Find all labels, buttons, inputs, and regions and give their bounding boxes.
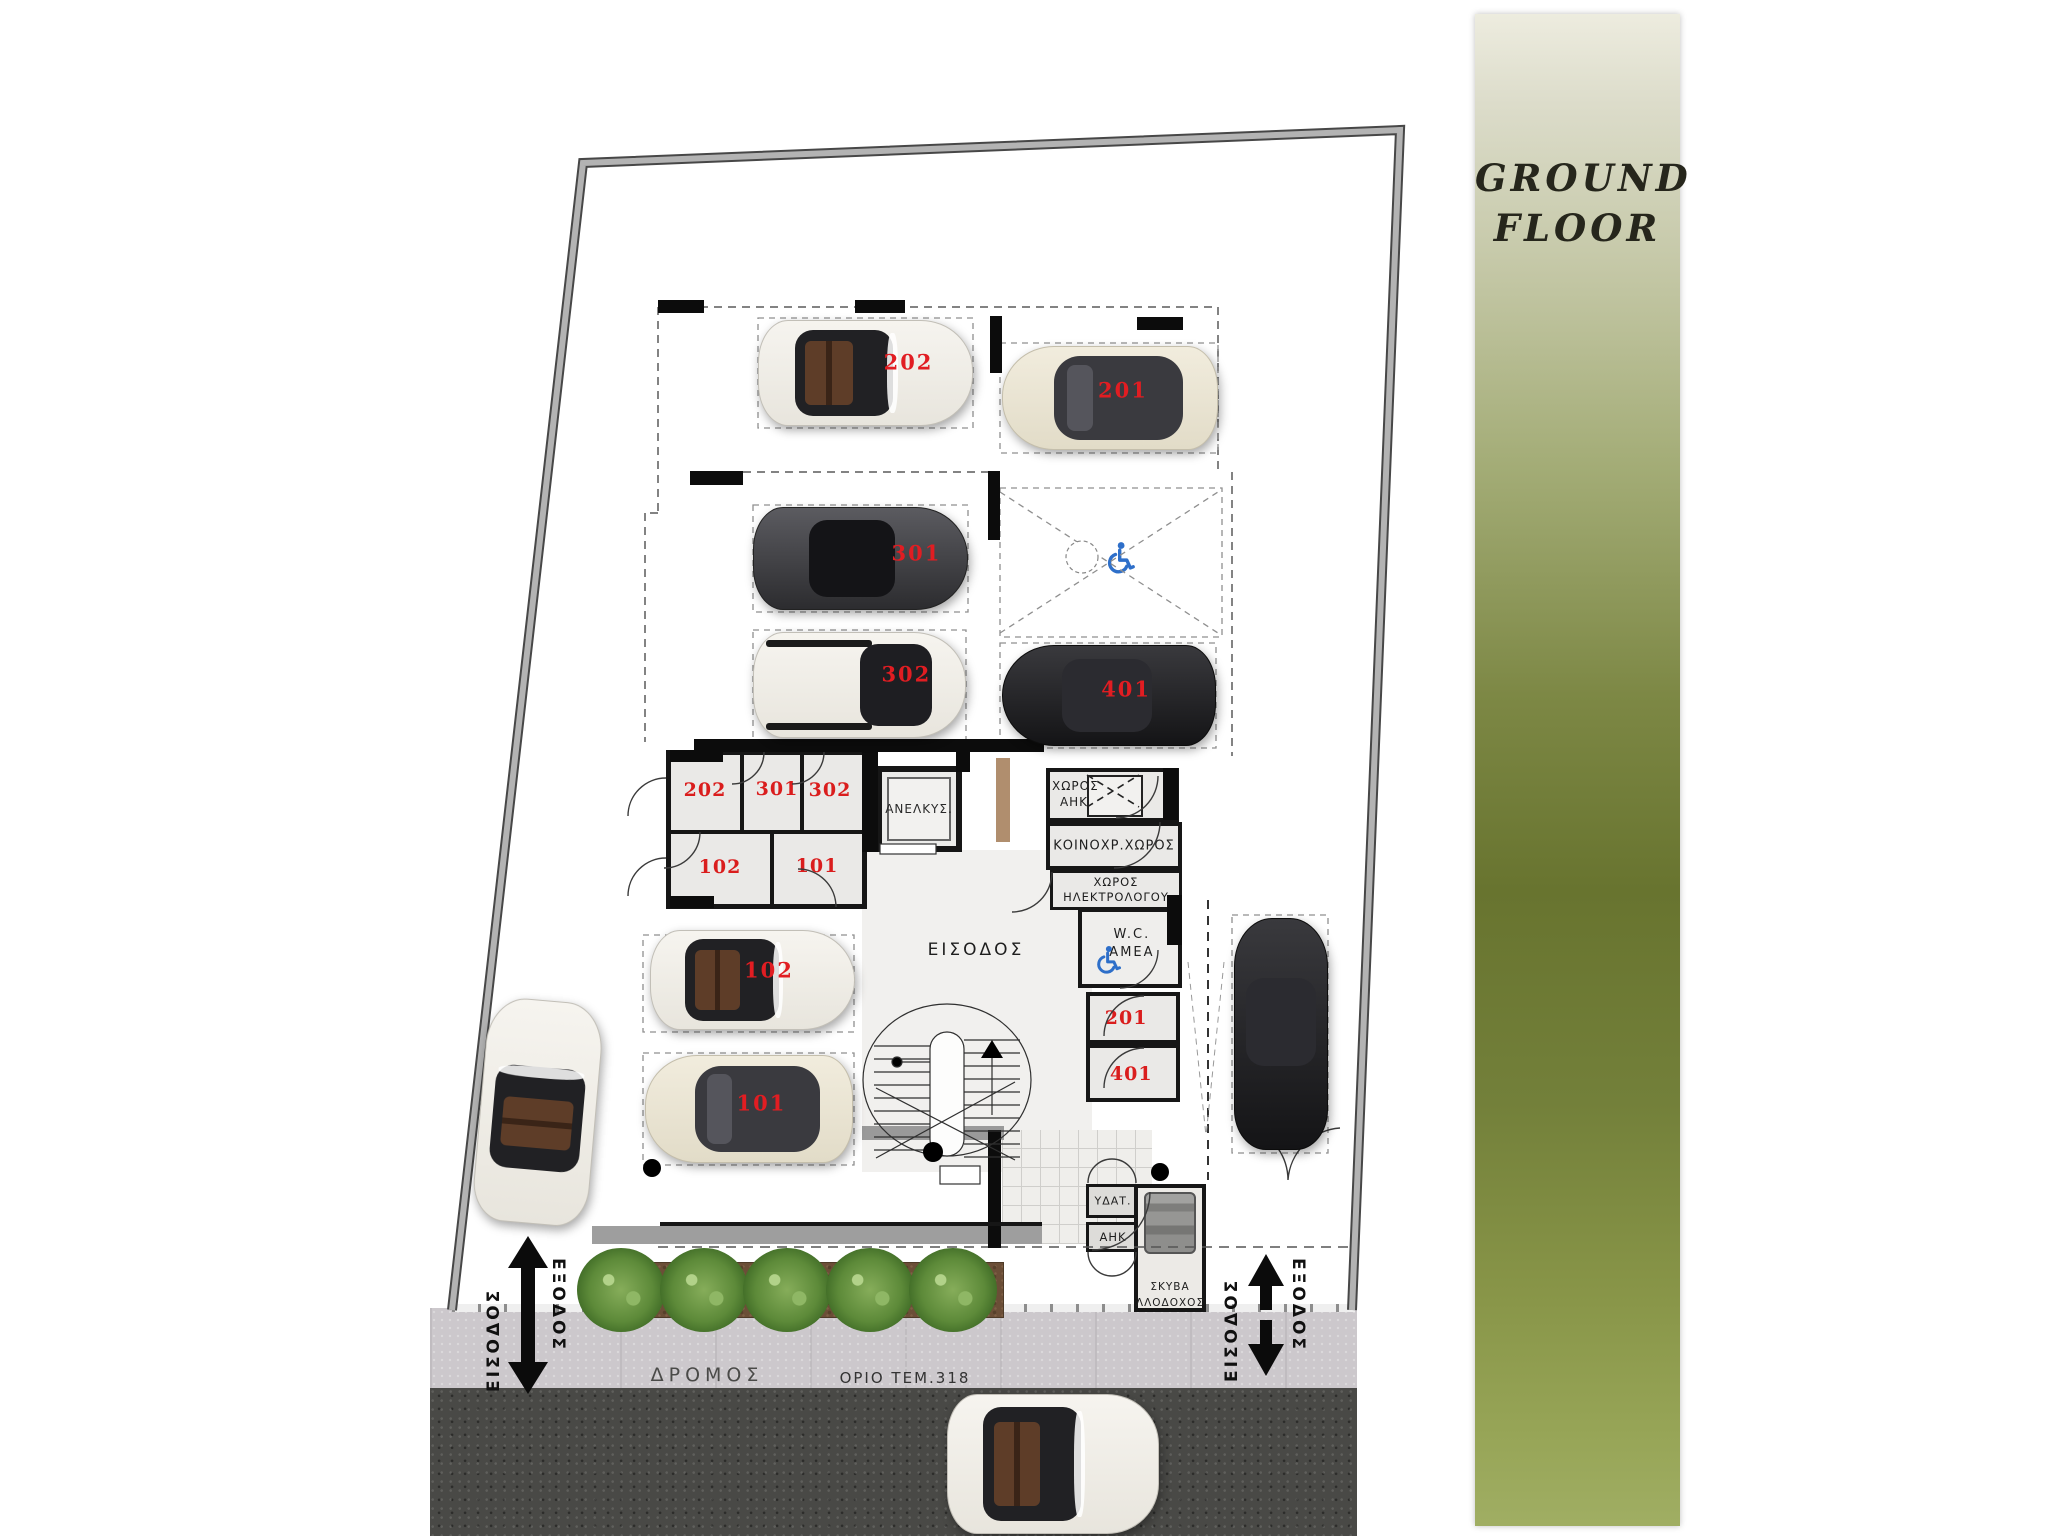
porch-wall bbox=[862, 1126, 1004, 1140]
tree bbox=[577, 1248, 665, 1332]
storage-302-label: 302 bbox=[809, 779, 852, 801]
parked-car-301: 301 bbox=[753, 507, 968, 610]
communal-room: ΚΟΙΝΟΧΡ.ΧΩΡΟΣ bbox=[1046, 822, 1182, 870]
water-room-label: ΥΔΑΤ. bbox=[1095, 1195, 1132, 1208]
road-asphalt bbox=[430, 1388, 1357, 1536]
tree bbox=[743, 1248, 831, 1332]
garbage-room-label: ΣΚΥΒΑΛΛΟΔΟΧΟΣ bbox=[1136, 1280, 1204, 1312]
entrance-hall-label: ΕΙΣΟΔΟΣ bbox=[928, 940, 1025, 960]
left-gate-entry-label: ΕΙΣΟΔΟΣ bbox=[484, 1256, 504, 1392]
parked-car-102: 102 bbox=[650, 930, 855, 1030]
parked-car-302: 302 bbox=[753, 632, 966, 738]
tree bbox=[660, 1248, 748, 1332]
right-gate-exit-label: ΕΞΟΔΟΣ bbox=[1288, 1258, 1308, 1382]
ahk-meter-label: ΑΗΚ bbox=[1099, 1230, 1126, 1244]
ahk-room-label: ΧΩΡΟΣΑΗΚ bbox=[1052, 779, 1096, 810]
store-201: 201 bbox=[1086, 992, 1180, 1044]
accessible-space-label: P8 bbox=[1070, 547, 1093, 567]
floor-plan-canvas: ΔΡΟΜΟΣ ΟΡΙΟ ΤΕΜ.318 202 301 302 102 101 … bbox=[0, 0, 2048, 1536]
parked-car-201: 201 bbox=[1002, 346, 1218, 450]
tree bbox=[826, 1248, 914, 1332]
title-strip: GROUND FLOOR bbox=[1475, 14, 1680, 1526]
wheelchair-icon bbox=[1092, 944, 1122, 976]
storage-301-label: 301 bbox=[756, 778, 799, 800]
parked-car-202: 202 bbox=[758, 320, 973, 426]
garbage-room: ΣΚΥΒΑΛΛΟΔΟΧΟΣ bbox=[1134, 1184, 1206, 1312]
water-room: ΥΔΑΤ. bbox=[1086, 1184, 1140, 1218]
storage-101-label: 101 bbox=[796, 855, 839, 877]
road-car bbox=[947, 1394, 1159, 1534]
storage-block: 202 301 302 102 101 bbox=[666, 750, 867, 909]
ahk-room: ΧΩΡΟΣΑΗΚ bbox=[1046, 768, 1179, 822]
parked-car-right bbox=[1234, 918, 1328, 1150]
store-401-label: 401 bbox=[1110, 1063, 1153, 1085]
store-401: 401 bbox=[1086, 1044, 1180, 1102]
electrician-room: ΧΩΡΟΣΗΛΕΚΤΡΟΛΟΓΟΥ bbox=[1050, 870, 1182, 910]
communal-room-label: ΚΟΙΝΟΧΡ.ΧΩΡΟΣ bbox=[1053, 839, 1175, 854]
right-gate-entry-label: ΕΙΣΟΔΟΣ bbox=[1222, 1258, 1242, 1382]
driveway-edge bbox=[592, 1226, 1042, 1244]
storage-102-label: 102 bbox=[699, 856, 742, 878]
store-201-label: 201 bbox=[1105, 1007, 1148, 1029]
elevator: ΑΝΕΛΚΥΣ. bbox=[876, 766, 962, 852]
garbage-bin bbox=[1144, 1192, 1196, 1254]
ahk-meter-room: ΑΗΚ bbox=[1086, 1222, 1140, 1252]
page-title: GROUND FLOOR bbox=[1475, 154, 1680, 254]
storage-202-label: 202 bbox=[684, 779, 727, 801]
tree bbox=[909, 1248, 997, 1332]
elevator-label: ΑΝΕΛΚΥΣ. bbox=[885, 802, 953, 816]
wheelchair-icon bbox=[1102, 540, 1136, 576]
left-gate-exit-label: ΕΞΟΔΟΣ bbox=[548, 1258, 568, 1388]
electrician-room-label: ΧΩΡΟΣΗΛΕΚΤΡΟΛΟΓΟΥ bbox=[1063, 875, 1169, 905]
driveway-car bbox=[470, 995, 605, 1228]
parked-car-101: 101 bbox=[645, 1055, 853, 1163]
parked-car-401: 401 bbox=[1002, 645, 1216, 746]
